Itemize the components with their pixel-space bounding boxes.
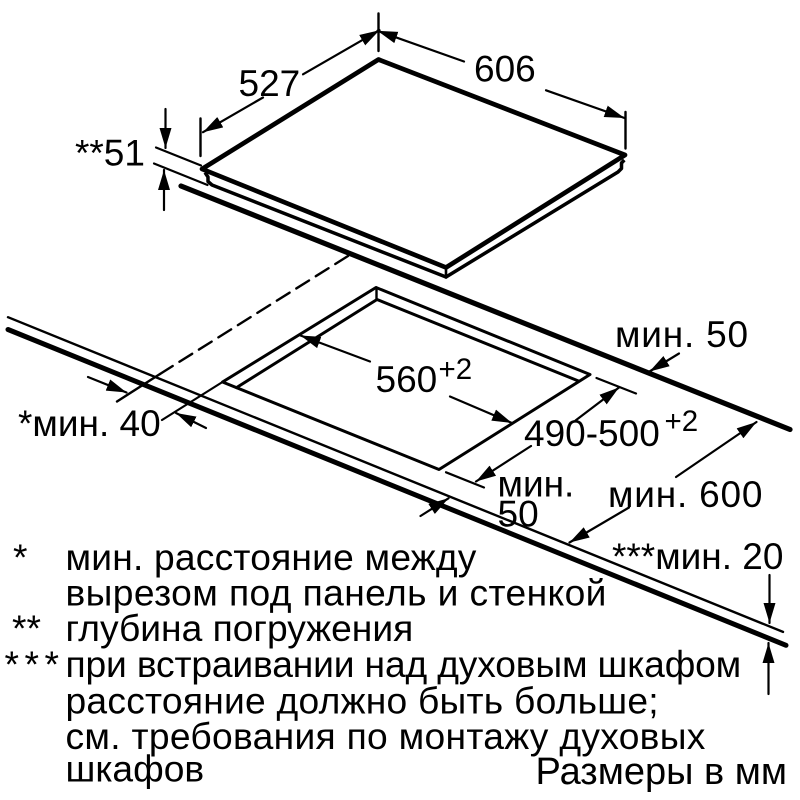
svg-text:Размеры в мм: Размеры в мм	[536, 751, 787, 793]
svg-text:*мин. 40: *мин. 40	[18, 403, 161, 444]
svg-text:мин. 600: мин. 600	[608, 474, 763, 515]
svg-text:*: *	[13, 536, 27, 578]
svg-text:490-500: 490-500	[524, 413, 660, 454]
svg-text:мин. 50: мин. 50	[615, 314, 749, 355]
svg-text:560: 560	[376, 359, 438, 400]
svg-text:**51: **51	[75, 133, 145, 174]
svg-text:***: ***	[5, 643, 65, 685]
svg-text:+2: +2	[665, 405, 699, 438]
svg-text:606: 606	[474, 49, 536, 90]
svg-text:527: 527	[239, 63, 301, 104]
svg-text:***мин. 20: ***мин. 20	[612, 536, 783, 577]
svg-text:+2: +2	[439, 353, 473, 386]
svg-text:шкафов: шкафов	[66, 748, 205, 790]
svg-text:50: 50	[498, 494, 539, 535]
